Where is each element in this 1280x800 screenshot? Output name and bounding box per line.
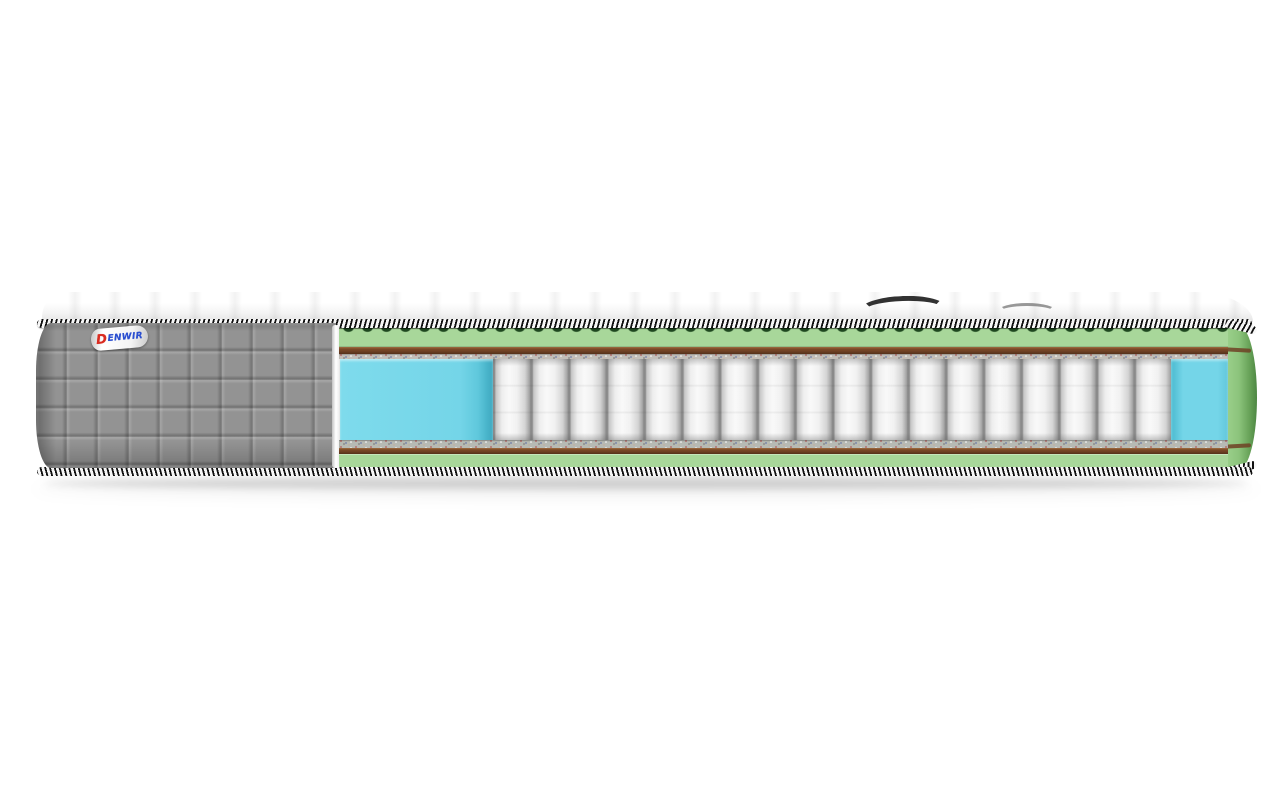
mattress-shadow	[44, 477, 1248, 489]
felt-pad-top-layer	[339, 347, 1228, 354]
mattress-top-surface	[42, 292, 1253, 322]
edge-support-foam-left	[340, 359, 493, 440]
border-tape-bottom	[37, 467, 1253, 476]
fabric-cut-edge	[332, 325, 339, 468]
cross-section	[339, 326, 1228, 469]
foam-end-cap-right	[1224, 326, 1257, 469]
spring-core	[339, 359, 1228, 440]
top-stitch-mark-2	[998, 303, 1056, 319]
fiber-pad-bottom-layer	[339, 440, 1228, 448]
quilted-cover-front	[36, 323, 336, 468]
mattress-cutaway-image: DENWIR	[0, 0, 1280, 800]
egg-crate-foam-top-layer	[339, 328, 1228, 347]
brand-logo-d: D	[96, 333, 108, 347]
brand-logo-text: ENWIR	[107, 331, 143, 343]
edge-support-foam-right	[1171, 359, 1228, 440]
pocket-springs	[493, 359, 1171, 440]
